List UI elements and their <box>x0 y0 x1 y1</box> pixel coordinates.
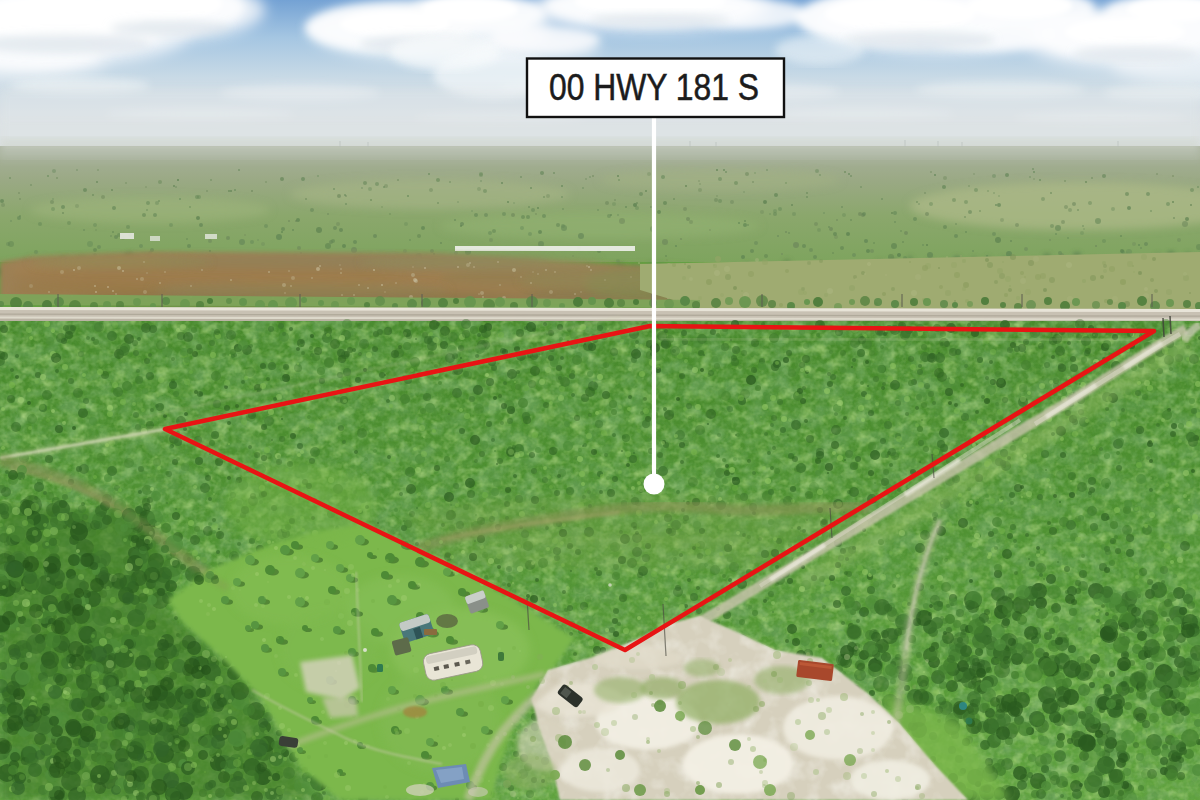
svg-text:00 HWY 181 S: 00 HWY 181 S <box>549 67 759 108</box>
